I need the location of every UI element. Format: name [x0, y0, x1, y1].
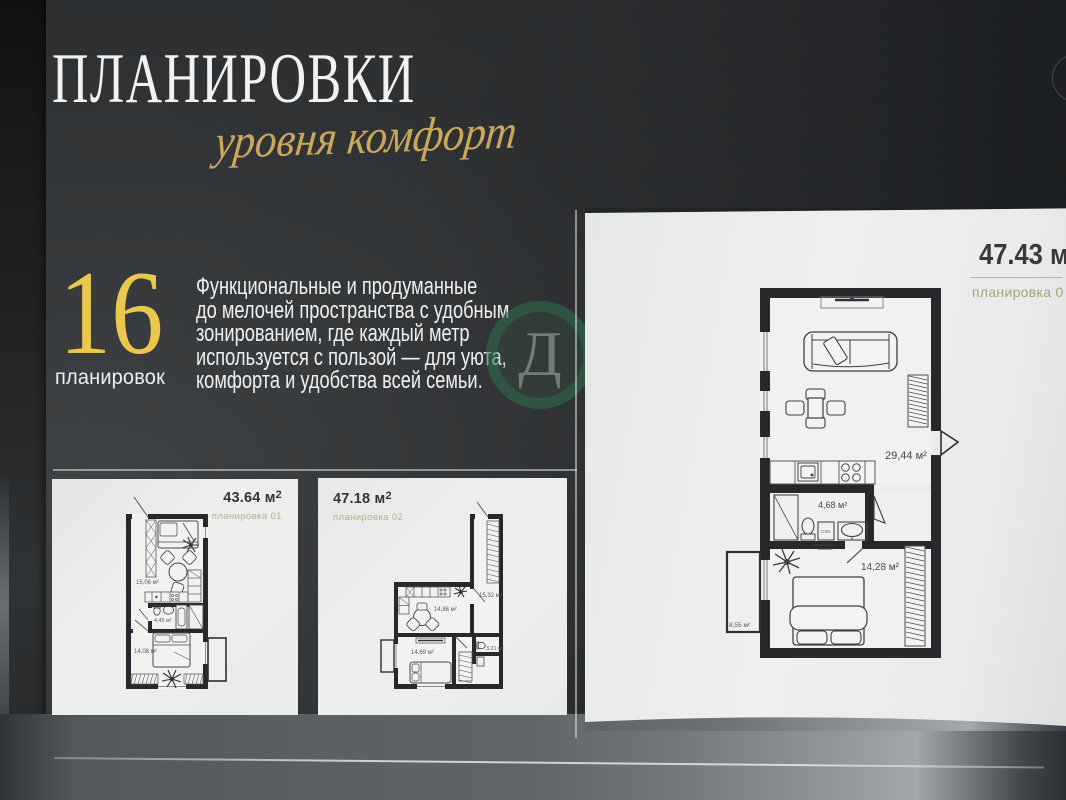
- svg-text:14,86 м²: 14,86 м²: [434, 607, 457, 613]
- svg-text:СтМ: СтМ: [821, 529, 830, 534]
- svg-text:14,69 м²: 14,69 м²: [411, 650, 434, 656]
- svg-text:15,06 м²: 15,06 м²: [136, 580, 159, 586]
- svg-text:29,44 м²: 29,44 м²: [885, 450, 927, 462]
- svg-text:8,55 м²: 8,55 м²: [729, 622, 751, 629]
- svg-text:3,21 м²: 3,21 м²: [486, 646, 504, 652]
- svg-text:15,32 м²: 15,32 м²: [479, 593, 502, 599]
- svg-text:14,08 м²: 14,08 м²: [134, 649, 157, 655]
- svg-text:4,45 м²: 4,45 м²: [154, 618, 172, 624]
- svg-text:14,28 м²: 14,28 м²: [861, 562, 900, 573]
- svg-text:4,68 м²: 4,68 м²: [818, 500, 847, 510]
